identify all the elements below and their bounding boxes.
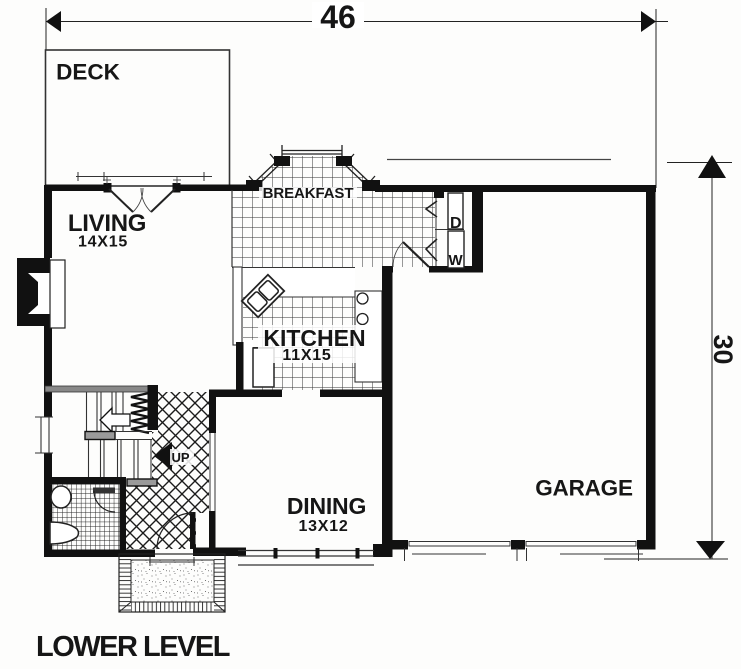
svg-text:D: D bbox=[450, 215, 462, 232]
svg-text:DECK: DECK bbox=[56, 60, 121, 85]
svg-text:46: 46 bbox=[320, 0, 356, 35]
svg-text:13X12: 13X12 bbox=[298, 518, 348, 535]
svg-text:UP: UP bbox=[172, 450, 190, 465]
svg-text:11X15: 11X15 bbox=[282, 347, 331, 364]
svg-text:30: 30 bbox=[708, 334, 738, 364]
svg-text:W: W bbox=[449, 252, 464, 269]
svg-text:LOWER LEVEL: LOWER LEVEL bbox=[36, 631, 230, 663]
svg-text:BREAKFAST: BREAKFAST bbox=[263, 185, 354, 202]
svg-text:GARAGE: GARAGE bbox=[535, 476, 633, 501]
svg-text:DINING: DINING bbox=[287, 493, 366, 519]
svg-text:14X15: 14X15 bbox=[78, 234, 128, 251]
